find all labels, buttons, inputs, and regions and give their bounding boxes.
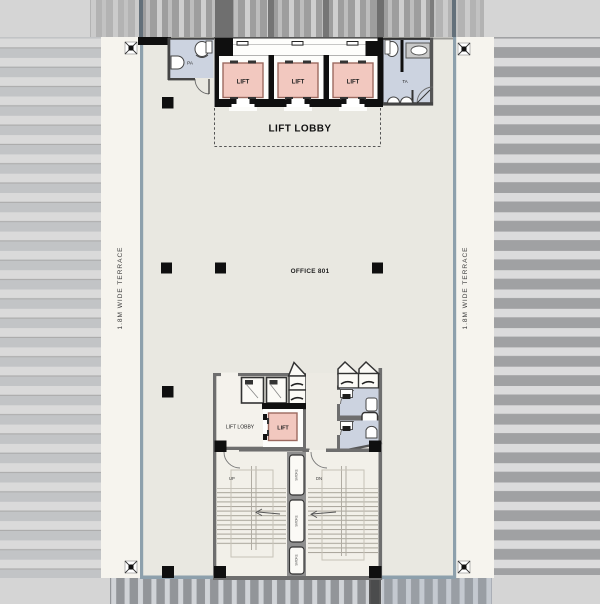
svg-text:SMOKE: SMOKE [295, 469, 299, 481]
svg-text:LIFT: LIFT [347, 80, 360, 86]
svg-text:LIFT: LIFT [237, 80, 250, 86]
svg-text:PA: PA [187, 61, 194, 66]
svg-text:OFFICE 801: OFFICE 801 [291, 268, 330, 275]
svg-text:1.8M WIDE TERRACE: 1.8M WIDE TERRACE [117, 247, 124, 330]
svg-text:SMOKE: SMOKE [295, 554, 299, 566]
svg-text:DN: DN [316, 476, 322, 481]
svg-text:LIFT: LIFT [277, 426, 289, 432]
svg-text:LIFT LOBBY: LIFT LOBBY [269, 124, 332, 135]
svg-text:LIFT LOBBY: LIFT LOBBY [226, 425, 255, 431]
svg-text:LIFT: LIFT [292, 80, 305, 86]
svg-text:SMOKE: SMOKE [295, 515, 299, 527]
svg-text:TA: TA [402, 79, 407, 84]
svg-text:1.8M WIDE TERRACE: 1.8M WIDE TERRACE [462, 247, 469, 330]
svg-text:UP: UP [229, 476, 235, 481]
